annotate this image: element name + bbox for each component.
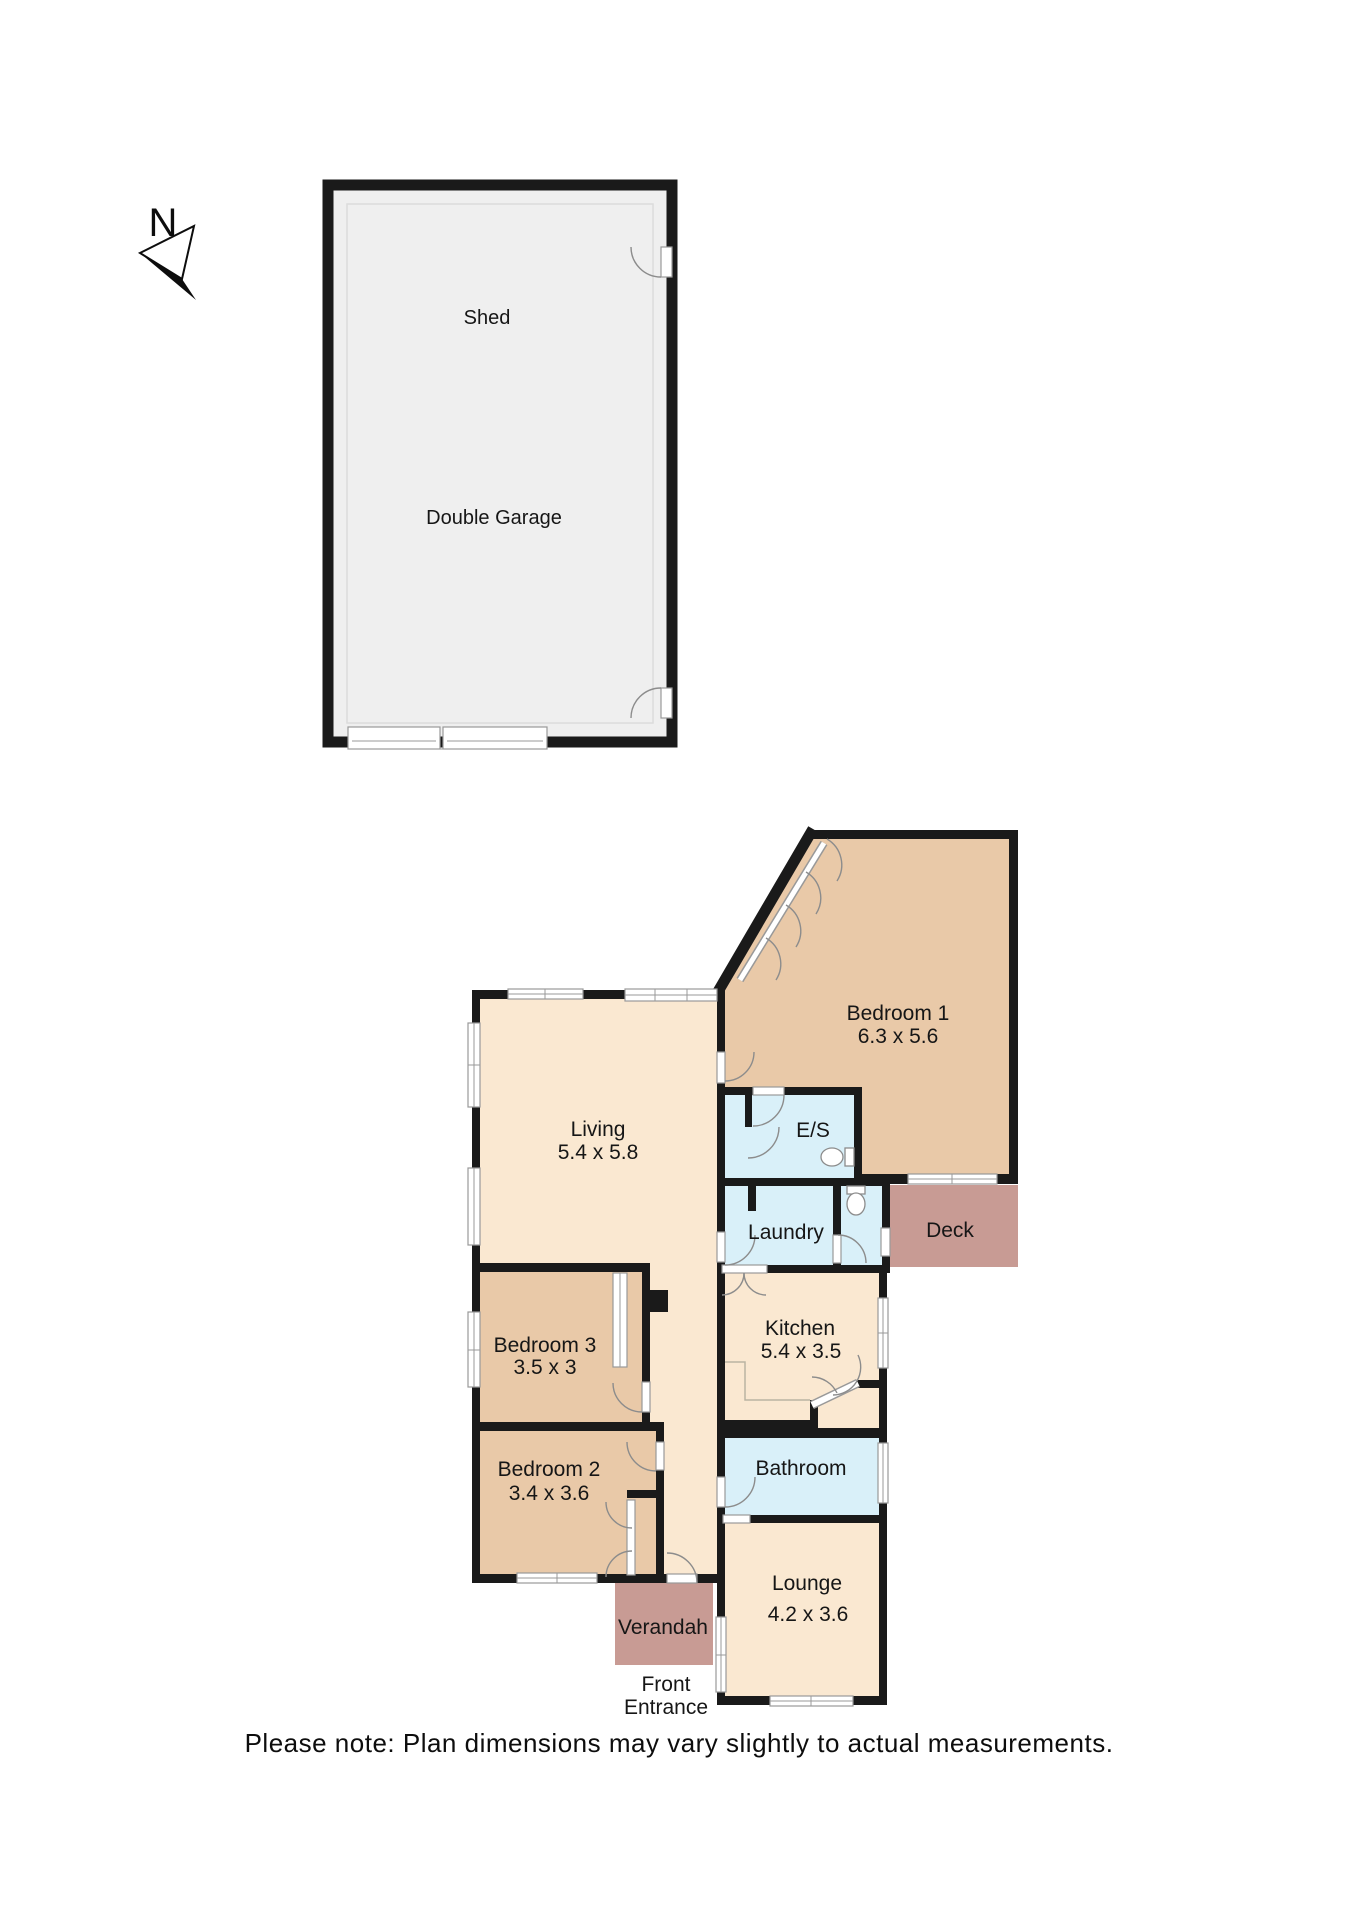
lounge-dims: 4.2 x 3.6 xyxy=(768,1603,849,1626)
deck-label: Deck xyxy=(926,1219,974,1242)
window xyxy=(881,1228,890,1256)
ensuite-label: E/S xyxy=(796,1119,830,1142)
bathroom-label: Bathroom xyxy=(755,1457,846,1480)
living-label: Living xyxy=(571,1118,626,1141)
bedroom2-dims: 3.4 x 3.6 xyxy=(509,1482,590,1505)
north-compass: N xyxy=(140,201,196,300)
garage-door-panels xyxy=(348,727,547,749)
disclaimer-note: Please note: Plan dimensions may vary sl… xyxy=(245,1728,1114,1758)
bedroom1-label: Bedroom 1 xyxy=(847,1002,950,1025)
kitchen-dims: 5.4 x 3.5 xyxy=(761,1340,842,1363)
chimney xyxy=(646,1290,668,1312)
bedroom3-dims: 3.5 x 3 xyxy=(513,1356,576,1379)
toilet-icon xyxy=(821,1148,854,1166)
shed-door-jamb xyxy=(661,247,672,277)
verandah-label: Verandah xyxy=(618,1616,708,1639)
toilet-icon xyxy=(847,1186,865,1215)
living-dims: 5.4 x 5.8 xyxy=(558,1141,639,1164)
laundry-label: Laundry xyxy=(748,1221,824,1244)
kitchen-label: Kitchen xyxy=(765,1317,835,1340)
double-garage-label: Double Garage xyxy=(426,507,562,529)
floorplan-canvas: N Shed Double Garage xyxy=(0,0,1358,1920)
lounge-label: Lounge xyxy=(772,1572,842,1595)
front-entrance-label-line1: Front xyxy=(641,1673,690,1696)
shed-building: Shed Double Garage xyxy=(328,185,672,749)
bedroom1-dims: 6.3 x 5.6 xyxy=(858,1025,939,1048)
shed-label: Shed xyxy=(464,307,511,329)
bedroom2-label: Bedroom 2 xyxy=(498,1458,601,1481)
front-entrance-label-line2: Entrance xyxy=(624,1696,708,1719)
shed-outline xyxy=(328,185,672,742)
bedroom3-label: Bedroom 3 xyxy=(494,1334,597,1357)
floorplan-page: N Shed Double Garage xyxy=(0,0,1358,1920)
room-ensuite xyxy=(722,1090,858,1182)
shed-door-jamb xyxy=(661,688,672,718)
